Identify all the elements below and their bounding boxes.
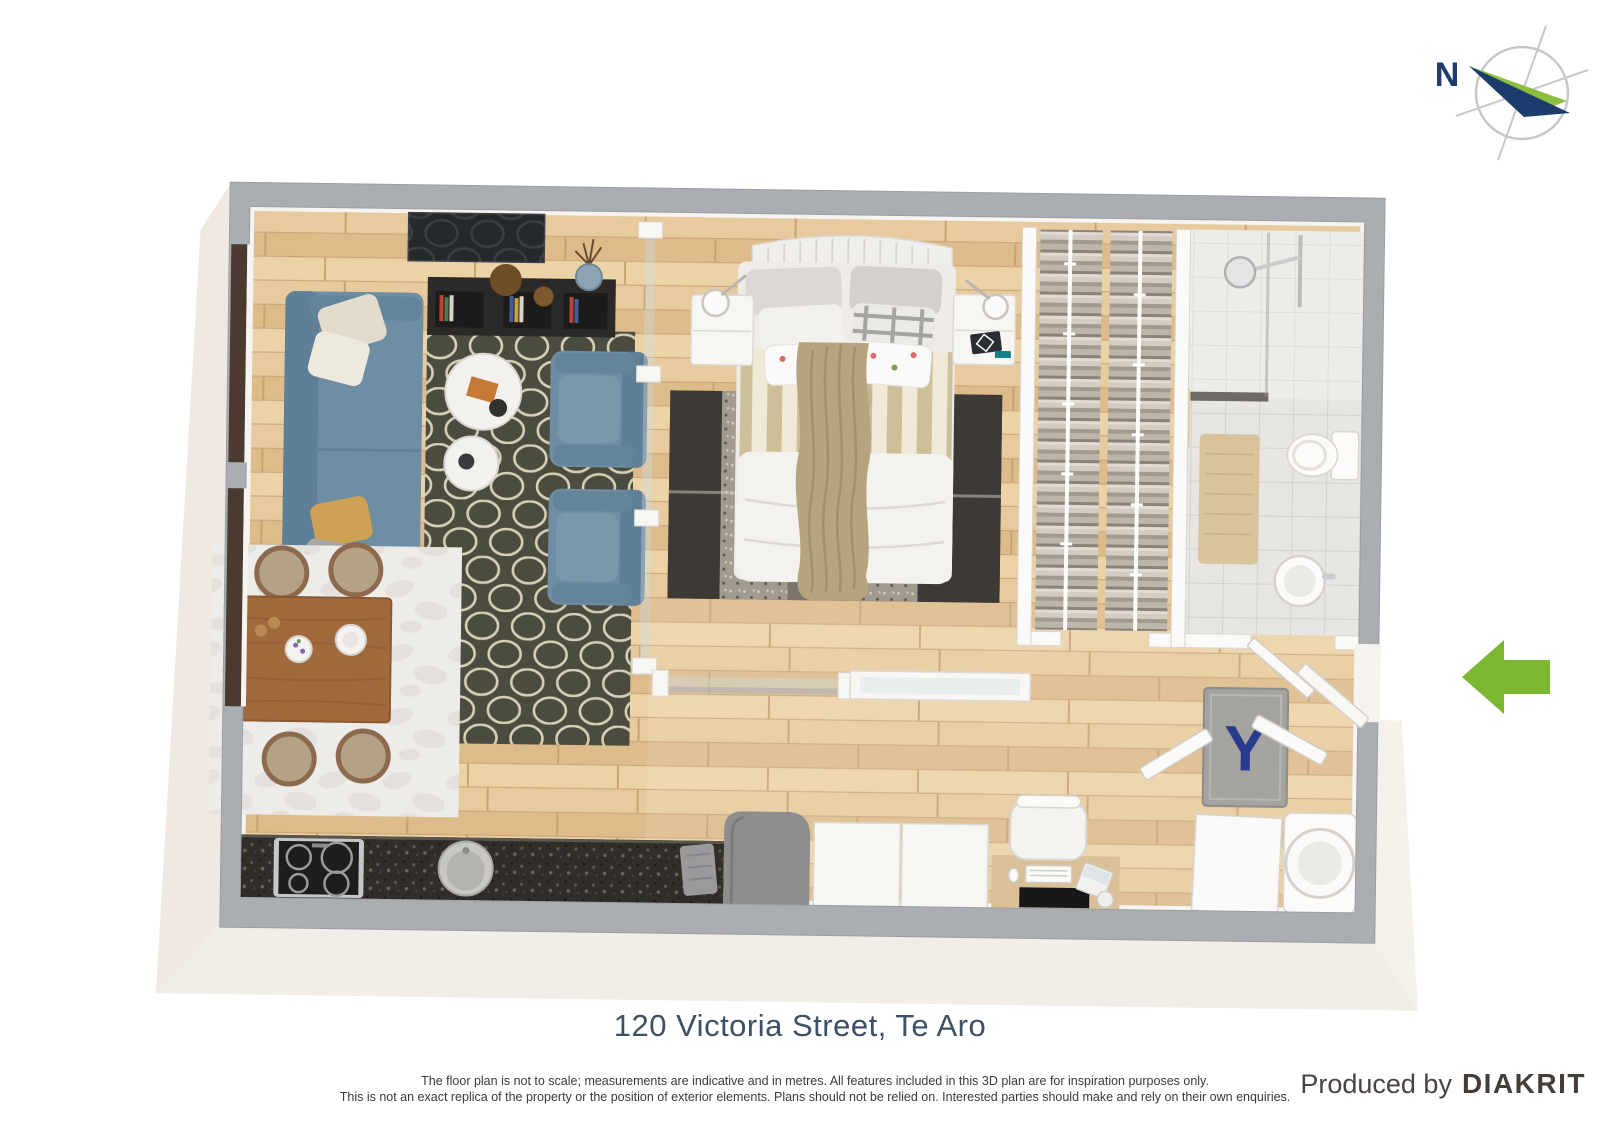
basin-tap [1322, 573, 1336, 579]
washing-machine [1283, 813, 1356, 914]
hall-wall-1 [1031, 631, 1061, 645]
page-title: 120 Victoria Street, Te Aro [0, 1008, 1600, 1044]
mouse [1009, 868, 1019, 882]
coffee-table-large [445, 353, 522, 430]
tv [408, 213, 545, 263]
produced-by: Produced by DIAKRIT [1300, 1068, 1586, 1100]
keyboard [1026, 865, 1072, 883]
knit-throw [793, 342, 872, 601]
gray-cabinet [723, 811, 810, 906]
shower-floor [1188, 230, 1364, 400]
kitchen-sink [438, 841, 493, 896]
compass-north-label: N [1435, 56, 1460, 94]
dining-chair-top-right [330, 545, 381, 596]
dining-chair-bottom-left [264, 734, 315, 785]
window-upper [228, 244, 247, 462]
shower-glass-bar [1190, 392, 1268, 402]
floor-plan: Y [156, 181, 1429, 1011]
bed [733, 234, 956, 602]
floral-plate [286, 636, 312, 662]
hall-wall-2 [1149, 633, 1171, 647]
compass: N [1435, 26, 1588, 160]
storage-cabinet-2 [901, 824, 988, 909]
dining-table [226, 596, 392, 722]
diakrit-logo: DIAKRIT [1462, 1068, 1586, 1100]
laundry-cabinet [1192, 814, 1283, 914]
armchair-bottom [547, 489, 646, 606]
shower-head [1225, 257, 1255, 287]
bathroom-bottom-wall-1 [1185, 634, 1251, 649]
cooktop [273, 838, 364, 898]
office-chair [1010, 795, 1087, 860]
dining-chair-top-left [256, 548, 307, 599]
floor-plan-canvas: Y [0, 0, 1600, 1131]
window-lower [225, 488, 244, 706]
entry-arrow-icon [1462, 640, 1550, 714]
storage-cabinet-1 [813, 822, 900, 907]
drawer-accent [995, 351, 1011, 358]
kitchen [223, 834, 724, 905]
desk-lamp-base [1097, 891, 1113, 907]
doormat: Y [1203, 688, 1289, 807]
coffee-table-small [444, 436, 499, 491]
bathroom [1174, 229, 1365, 636]
produced-by-label: Produced by [1300, 1069, 1452, 1100]
page: Y [0, 0, 1600, 1131]
compass-needle-navy [1469, 66, 1570, 117]
armchair-top [549, 351, 648, 468]
dining-chair-bottom-right [338, 731, 389, 782]
tea-towel [679, 843, 717, 896]
shower-rail [1300, 235, 1301, 307]
